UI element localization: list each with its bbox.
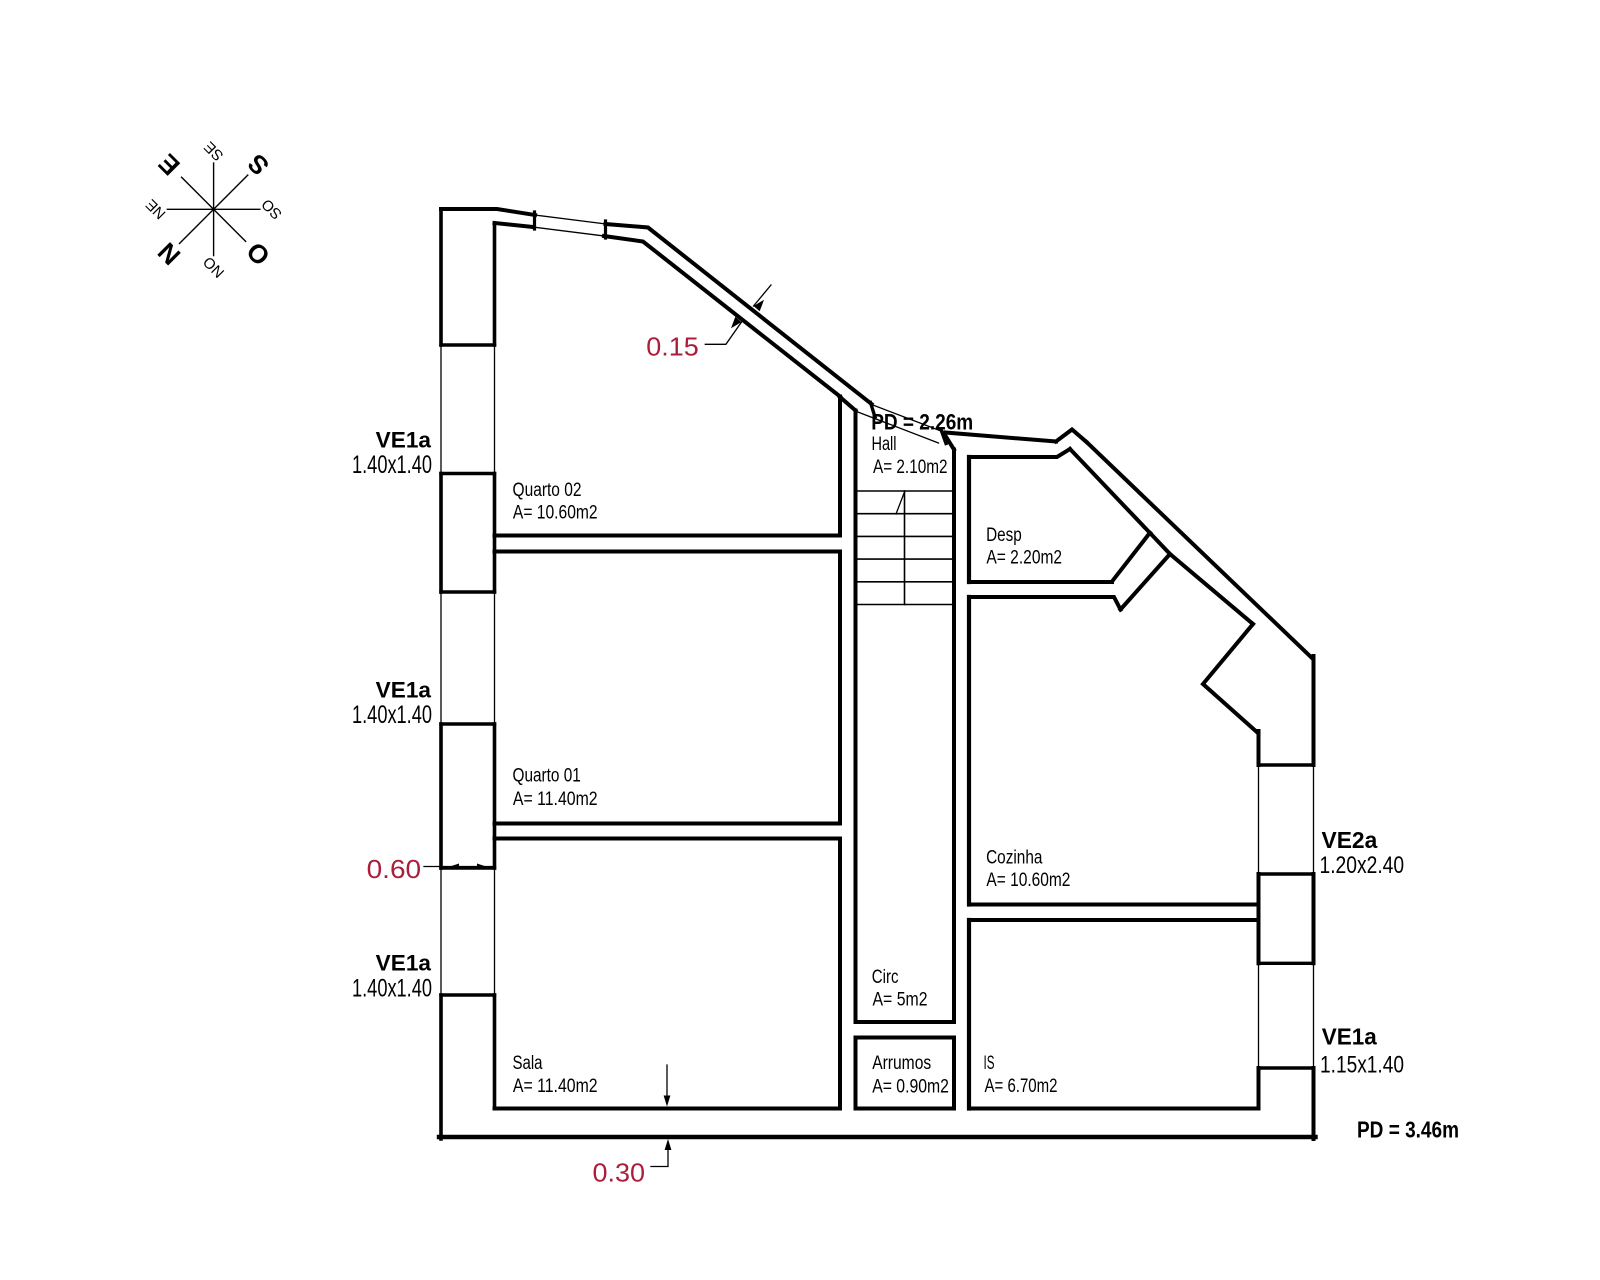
svg-text:Sala: Sala — [513, 1053, 543, 1074]
svg-text:A= 5m2: A= 5m2 — [873, 989, 928, 1010]
svg-text:0.15: 0.15 — [646, 332, 699, 362]
svg-text:A= 6.70m2: A= 6.70m2 — [985, 1076, 1058, 1097]
svg-text:A= 2.20m2: A= 2.20m2 — [986, 548, 1062, 569]
svg-text:Cozinha: Cozinha — [986, 848, 1043, 869]
svg-text:Desp: Desp — [986, 525, 1022, 546]
svg-text:1.20x2.40: 1.20x2.40 — [1320, 852, 1405, 879]
svg-text:A= 2.10m2: A= 2.10m2 — [873, 457, 948, 478]
svg-text:VE1a: VE1a — [1322, 1024, 1377, 1050]
svg-text:VE1a: VE1a — [376, 678, 432, 703]
svg-text:VE2a: VE2a — [1322, 827, 1378, 853]
svg-text:0.60: 0.60 — [367, 854, 422, 884]
svg-text:Arrumos: Arrumos — [872, 1053, 931, 1074]
svg-text:1.40x1.40: 1.40x1.40 — [352, 451, 432, 479]
svg-text:Quarto 02: Quarto 02 — [513, 480, 582, 501]
svg-text:0.30: 0.30 — [593, 1158, 646, 1188]
svg-text:VE1a: VE1a — [376, 951, 432, 976]
svg-text:A= 11.40m2: A= 11.40m2 — [513, 1076, 598, 1097]
svg-text:Hall: Hall — [872, 434, 897, 455]
svg-text:A= 10.60m2: A= 10.60m2 — [986, 870, 1070, 891]
svg-text:Quarto 01: Quarto 01 — [513, 766, 581, 787]
svg-text:1.15x1.40: 1.15x1.40 — [1320, 1051, 1404, 1078]
svg-text:1.40x1.40: 1.40x1.40 — [352, 974, 432, 1002]
svg-text:PD = 2.26m: PD = 2.26m — [871, 410, 973, 435]
svg-text:Circ: Circ — [872, 967, 899, 988]
svg-text:A= 10.60m2: A= 10.60m2 — [513, 502, 598, 523]
svg-text:1.40x1.40: 1.40x1.40 — [352, 701, 432, 729]
svg-text:IS: IS — [984, 1053, 995, 1074]
svg-text:A= 0.90m2: A= 0.90m2 — [872, 1077, 949, 1098]
svg-text:PD = 3.46m: PD = 3.46m — [1357, 1116, 1459, 1142]
svg-text:A= 11.40m2: A= 11.40m2 — [513, 789, 598, 810]
svg-text:VE1a: VE1a — [376, 428, 432, 453]
